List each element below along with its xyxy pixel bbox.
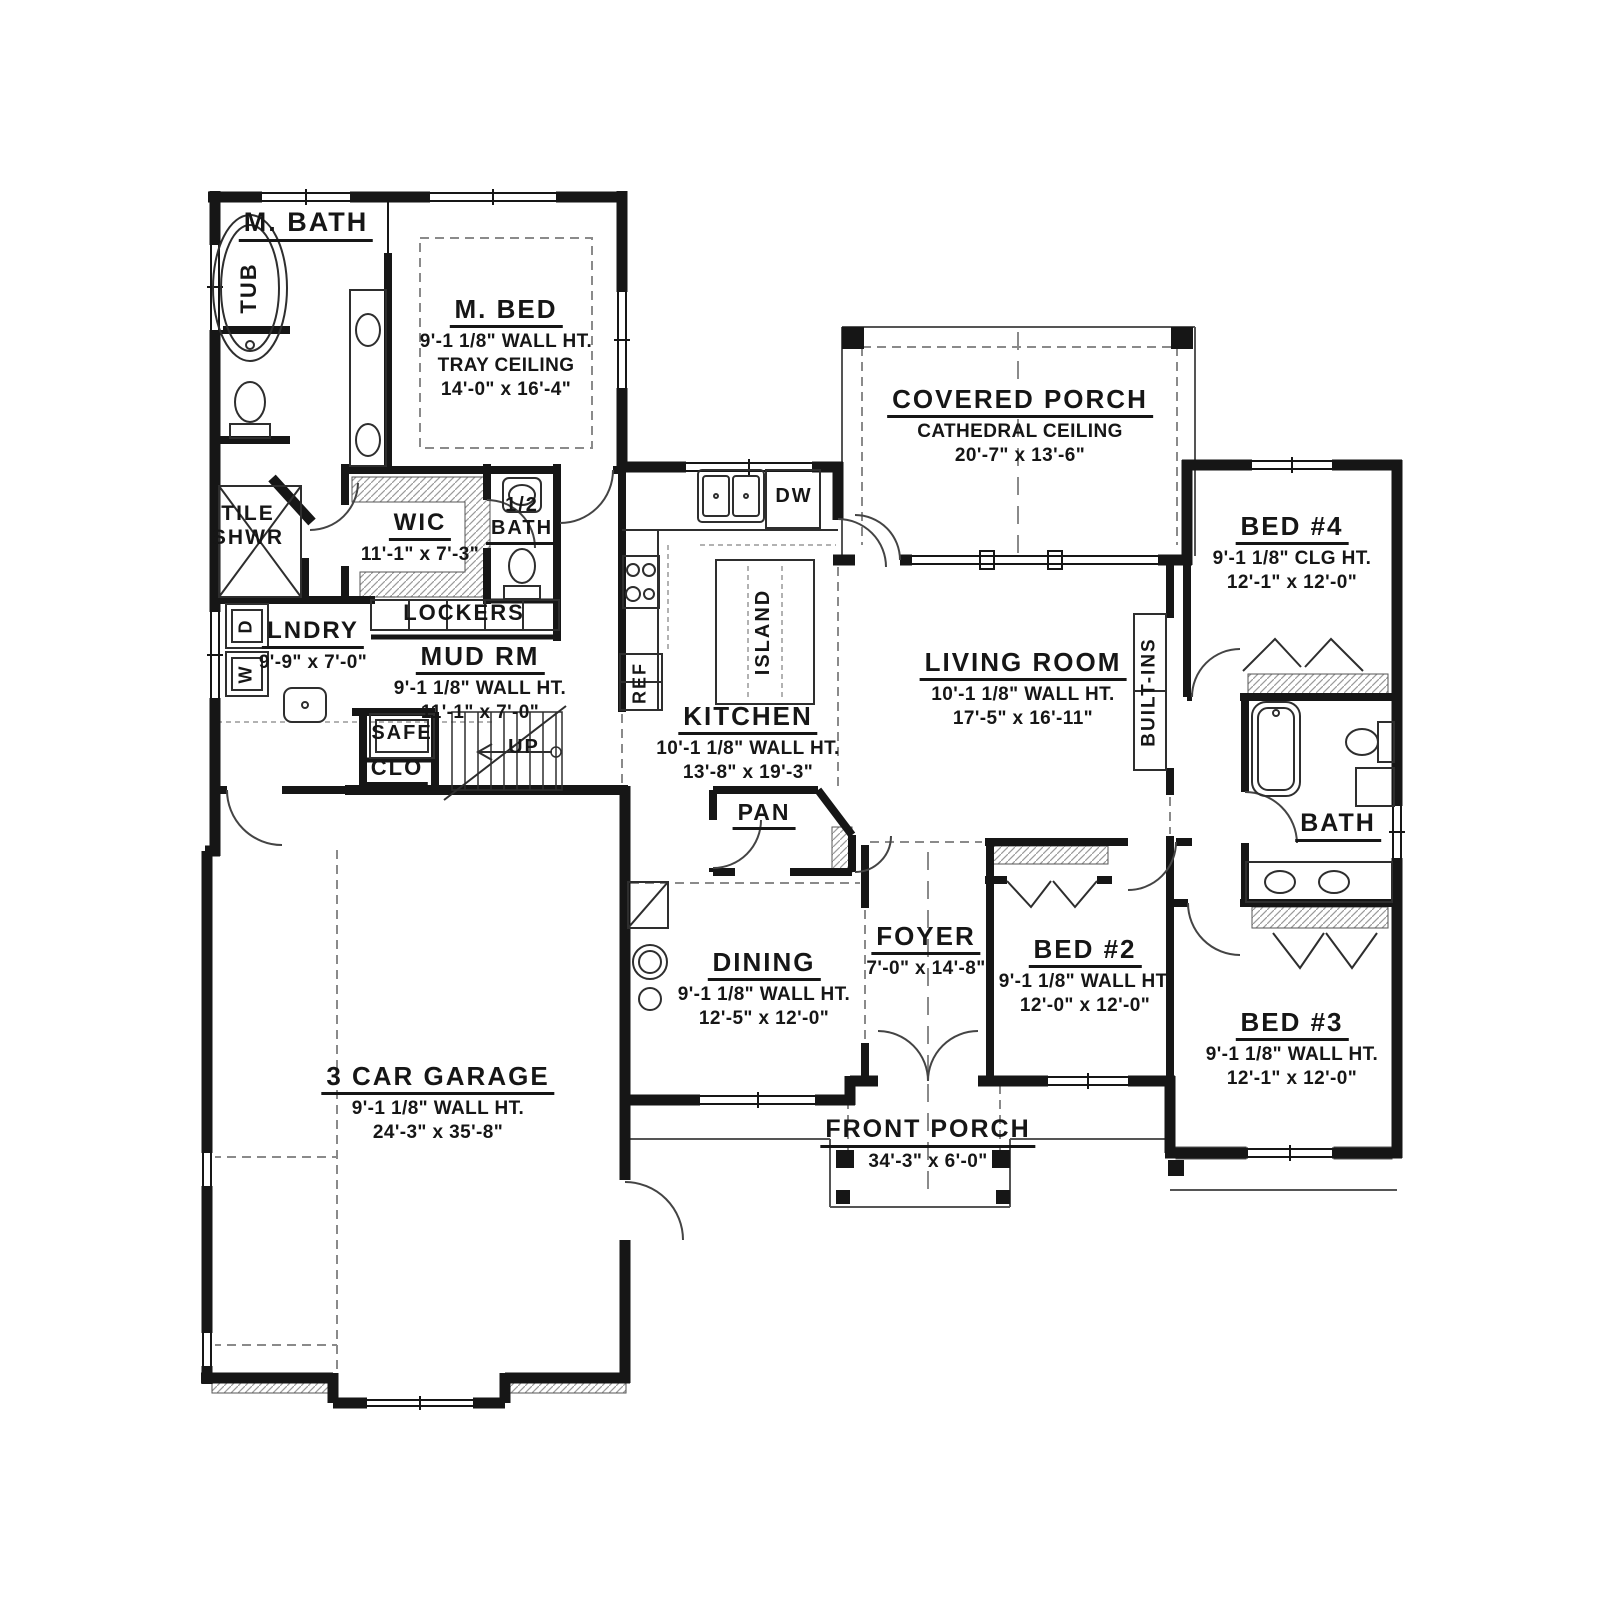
label-m-bed: M. BED9'-1 1/8" WALL HT.TRAY CEILING14'-… xyxy=(420,295,592,400)
label-safe: SAFE xyxy=(366,723,437,747)
label-living-room: LIVING ROOM10'-1 1/8" WALL HT.17'-5" x 1… xyxy=(920,648,1127,729)
label-pan: PAN xyxy=(733,800,796,830)
label-covered-porch: COVERED PORCHCATHEDRAL CEILING20'-7" x 1… xyxy=(887,385,1153,466)
floor-plan-page: M. BATHM. BED9'-1 1/8" WALL HT.TRAY CEIL… xyxy=(0,0,1600,1598)
label-wic: WIC11'-1" x 7'-3" xyxy=(361,510,479,565)
label-m-bath: M. BATH xyxy=(239,208,373,242)
label-half-bath: BATH xyxy=(486,518,558,545)
label-dining: DINING9'-1 1/8" WALL HT.12'-5" x 12'-0" xyxy=(678,948,850,1029)
label-foyer: FOYER7'-0" x 14'-8" xyxy=(866,922,985,979)
label-clo: CLO xyxy=(366,756,428,785)
label-tub: TUB xyxy=(237,257,263,318)
label-garage: 3 CAR GARAGE9'-1 1/8" WALL HT.24'-3" x 3… xyxy=(321,1062,554,1143)
label-washer: W xyxy=(236,660,257,689)
label-ref: REF xyxy=(630,657,651,709)
label-bed3: BED #39'-1 1/8" WALL HT.12'-1" x 12'-0" xyxy=(1206,1008,1378,1089)
label-lockers: LOCKERS xyxy=(398,601,530,627)
label-island: ISLAND xyxy=(753,584,777,680)
label-half-bath-num: 1/2 xyxy=(500,495,544,519)
label-built-ins: BUILT-INS xyxy=(1140,632,1163,751)
label-lndry: LNDRY9'-9" x 7'-0" xyxy=(259,618,367,673)
label-dw: DW xyxy=(770,486,817,510)
label-kitchen: KITCHEN10'-1 1/8" WALL HT.13'-8" x 19'-3… xyxy=(656,702,839,783)
label-up: UP xyxy=(503,737,545,761)
label-tile: TILE xyxy=(216,503,280,528)
room-labels: M. BATHM. BED9'-1 1/8" WALL HT.TRAY CEIL… xyxy=(0,0,1600,1598)
label-mud-rm: MUD RM9'-1 1/8" WALL HT.11'-1" x 7'-0" xyxy=(394,642,566,723)
label-bed2: BED #29'-1 1/8" WALL HT.12'-0" x 12'-0" xyxy=(999,935,1171,1016)
label-front-porch: FRONT PORCH34'-3" x 6'-0" xyxy=(820,1116,1035,1172)
label-dryer: D xyxy=(236,614,257,639)
label-bath: BATH xyxy=(1295,810,1381,842)
label-bed4: BED #49'-1 1/8" CLG HT.12'-1" x 12'-0" xyxy=(1213,512,1372,593)
label-shwr: SHWR xyxy=(207,527,289,552)
